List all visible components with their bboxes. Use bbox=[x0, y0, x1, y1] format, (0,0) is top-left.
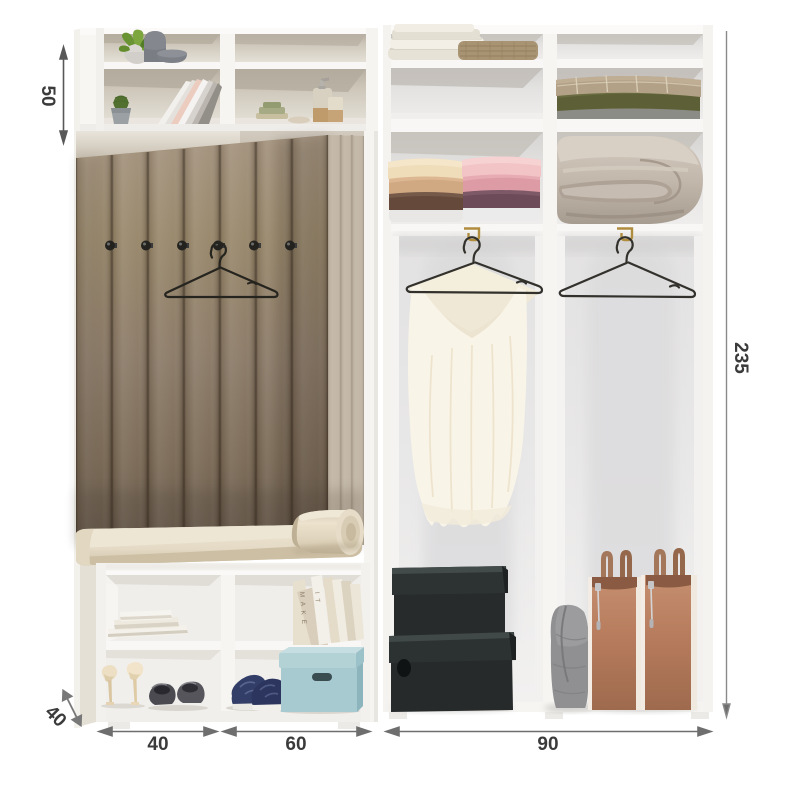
svg-text:I T: I T bbox=[313, 592, 321, 604]
svg-text:40: 40 bbox=[147, 734, 168, 755]
svg-text:90: 90 bbox=[537, 734, 558, 755]
svg-text:50: 50 bbox=[37, 85, 58, 106]
svg-text:235: 235 bbox=[730, 342, 751, 374]
svg-text:60: 60 bbox=[285, 734, 306, 755]
